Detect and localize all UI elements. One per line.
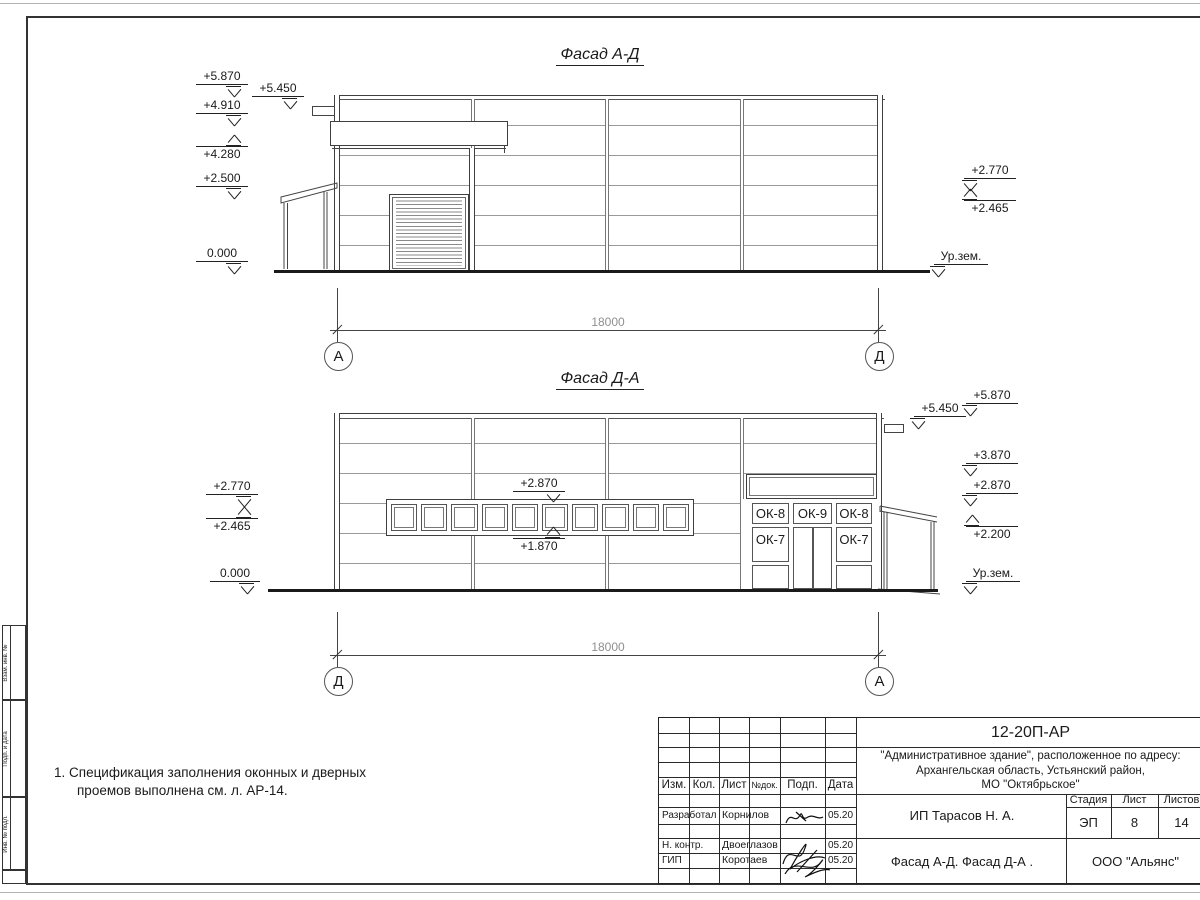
elevation-mark: +5.870 <box>196 70 248 85</box>
tb-stage-label: Стадия <box>1066 794 1111 807</box>
elevation-flag-icon <box>226 115 241 125</box>
tb-address-1: "Административное здание", расположенное… <box>858 749 1200 764</box>
signature <box>782 808 826 828</box>
elevation-mark: +2.500 <box>196 172 248 187</box>
elevation-mark: +5.450 <box>252 82 304 97</box>
facade1-canopy-flange <box>332 148 506 149</box>
sidestamp-label: Инв. № подл. <box>3 809 9 859</box>
elevation-mark: +2.770 <box>206 480 258 495</box>
window-pane <box>421 504 447 531</box>
dimension-value: 18000 <box>558 640 658 654</box>
title-block: Изм. Кол. Лист №док. Подп. Дата Разработ… <box>658 717 1200 884</box>
window-pane <box>572 504 598 531</box>
tb-stage-value: ЭП <box>1066 807 1111 838</box>
frame-top <box>26 16 1200 18</box>
tb-sheets-value: 14 <box>1158 807 1200 838</box>
sidestamp-cell: Инв. № подл. <box>2 797 26 870</box>
axis-bubble: Д <box>865 342 894 371</box>
elevation-flag-icon <box>545 528 560 538</box>
facade2-corner-post-left <box>334 413 340 591</box>
facade1-roller-door <box>389 194 469 272</box>
facade2-title: Фасад Д-А <box>515 370 685 388</box>
tb-address-3: МО "Октябрьское" <box>858 778 1200 793</box>
facade2-ribbon-window <box>386 499 694 536</box>
facade2-roof-pipe <box>884 424 904 433</box>
roller-door-slats <box>392 197 466 269</box>
tb-role-3: ГИП <box>662 853 718 868</box>
drawing-sheet: Фасад А-Д +5.870 +5.450 +4.910 +4.280 +2… <box>0 0 1200 900</box>
axis-bubble: Д <box>324 667 353 696</box>
dimension-line <box>330 330 886 331</box>
elevation-flag-icon <box>962 583 977 593</box>
elevation-mark: +5.870 <box>966 389 1018 404</box>
axis-bubble: А <box>865 667 894 696</box>
elevation-mark: +2.870 <box>966 479 1018 494</box>
elevation-flag-icon <box>282 98 297 108</box>
window-pane <box>663 504 689 531</box>
elevation-flag-icon <box>226 86 241 96</box>
window-pane <box>633 504 659 531</box>
facade1-leanto-canopy <box>276 178 340 274</box>
elevation-mark: +4.910 <box>196 99 248 114</box>
axis-extension-line <box>878 612 879 667</box>
sidestamp-label: Подп. и дата <box>3 724 9 774</box>
entrance-glazing-cell <box>836 565 872 589</box>
facade1-canopy-band <box>330 121 508 146</box>
elevation-mark: +2.770 <box>964 164 1016 179</box>
window-pane <box>602 504 628 531</box>
facade1-portal-column <box>469 148 475 272</box>
sidestamp-cell <box>2 870 26 884</box>
elevation-flag-icon <box>962 465 977 475</box>
facade2-leanto-canopy <box>874 496 942 596</box>
elevation-mark: +5.450 <box>914 402 966 417</box>
tb-project-code: 12-20П-АР <box>856 718 1200 747</box>
window-ok7-left: ОК-7 <box>752 527 789 562</box>
elevation-flag-icon <box>962 495 977 505</box>
tb-role-1: Разработал <box>662 807 718 824</box>
elevation-flag-icon <box>226 188 241 198</box>
tb-name-1: Корнилов <box>722 807 779 824</box>
axis-bubble: А <box>324 342 353 371</box>
signature <box>777 836 833 880</box>
window-ok7-right: ОК-7 <box>836 527 872 562</box>
elevation-flag-icon <box>964 516 979 526</box>
tb-col-list: Лист <box>719 777 749 794</box>
facade1-roof-pipe <box>312 106 335 116</box>
tb-name-3: Коротаев <box>722 853 779 868</box>
sidestamp-label: Взам. инв. № <box>3 638 9 688</box>
facade2-ground-line <box>268 589 938 592</box>
axis-extension-line <box>878 288 879 342</box>
window-ok8-left: ОК-8 <box>752 503 789 524</box>
elevation-mark: 0.000 <box>210 567 260 582</box>
tb-col-ndok: №док. <box>749 777 780 794</box>
tb-col-izm: Изм. <box>659 777 689 794</box>
elevation-flag-icon <box>239 583 254 593</box>
facade2-entrance-transom <box>746 474 877 499</box>
elevation-flag-icon <box>910 418 925 428</box>
ground-level-label: Ур.зем. <box>966 567 1020 582</box>
elevation-flag-icon <box>226 136 241 146</box>
elevation-mark: +2.870 <box>513 477 565 492</box>
tb-doc-title: Фасад А-Д. Фасад Д-А . <box>858 838 1066 885</box>
facade1-canopy-tick <box>504 146 505 153</box>
note-line-1: 1. Спецификация заполнения оконных и две… <box>54 765 366 780</box>
facade1-corner-post-right <box>877 95 883 272</box>
elevation-flag-icon <box>930 266 945 276</box>
sidestamp-cell: Взам. инв. № <box>2 625 26 700</box>
tb-col-kol: Кол. <box>689 777 719 794</box>
frame-left <box>26 16 28 884</box>
ground-level-label: Ур.зем. <box>934 250 988 265</box>
window-pane <box>391 504 417 531</box>
note-line-2: проемов выполнена см. л. АР-14. <box>77 783 288 798</box>
tb-role-2: Н. контр. <box>662 838 718 853</box>
tb-col-podp: Подп. <box>780 777 825 794</box>
window-ok8-right: ОК-8 <box>836 503 872 524</box>
elevation-flag-icon <box>962 190 977 200</box>
tb-address-2: Архангельская область, Устьянский район, <box>858 764 1200 779</box>
elevation-mark: +1.870 <box>513 538 565 553</box>
dimension-value: 18000 <box>558 315 658 329</box>
tb-sheet-value: 8 <box>1111 807 1158 838</box>
page-bottom-edge <box>0 892 1200 893</box>
tb-col-data: Дата <box>825 777 856 794</box>
window-pane <box>482 504 508 531</box>
elevation-flag-icon <box>545 491 560 501</box>
page-top-edge <box>0 3 1200 4</box>
tb-company: ООО "Альянс" <box>1066 838 1200 885</box>
elevation-mark: +4.280 <box>196 146 248 161</box>
window-ok9: ОК-9 <box>793 503 832 524</box>
tb-sheets-label: Листов <box>1158 794 1200 807</box>
facade2-parapet-line <box>335 418 884 419</box>
window-pane <box>451 504 477 531</box>
elevation-mark: +2.465 <box>206 518 258 533</box>
window-pane <box>512 504 538 531</box>
elevation-flag-icon <box>236 508 251 518</box>
entrance-glazing-cell <box>752 565 789 589</box>
facade1-ground-line <box>274 270 930 273</box>
elevation-mark: +3.870 <box>966 449 1018 464</box>
sidestamp-cell: Подп. и дата <box>2 700 26 797</box>
facade1-parapet-line <box>335 99 885 100</box>
elevation-mark: +2.200 <box>966 526 1018 541</box>
facade1-title: Фасад А-Д <box>515 46 685 64</box>
entrance-door-leaf <box>813 527 832 589</box>
entrance-door-leaf <box>793 527 813 589</box>
tb-client: ИП Тарасов Н. А. <box>858 794 1066 838</box>
axis-extension-line <box>337 288 338 342</box>
dimension-line <box>330 655 886 656</box>
tb-name-2: Двоеглазов <box>722 838 780 853</box>
facade1-mullion <box>605 99 609 271</box>
tb-sheet-label: Лист <box>1111 794 1158 807</box>
elevation-flag-icon <box>236 496 251 506</box>
elevation-mark: 0.000 <box>196 247 248 262</box>
facade1-mullion <box>740 99 744 271</box>
tb-date-1: 05.20 <box>825 807 856 824</box>
axis-extension-line <box>337 612 338 667</box>
elevation-flag-icon <box>226 263 241 273</box>
elevation-mark: +2.465 <box>964 200 1016 215</box>
